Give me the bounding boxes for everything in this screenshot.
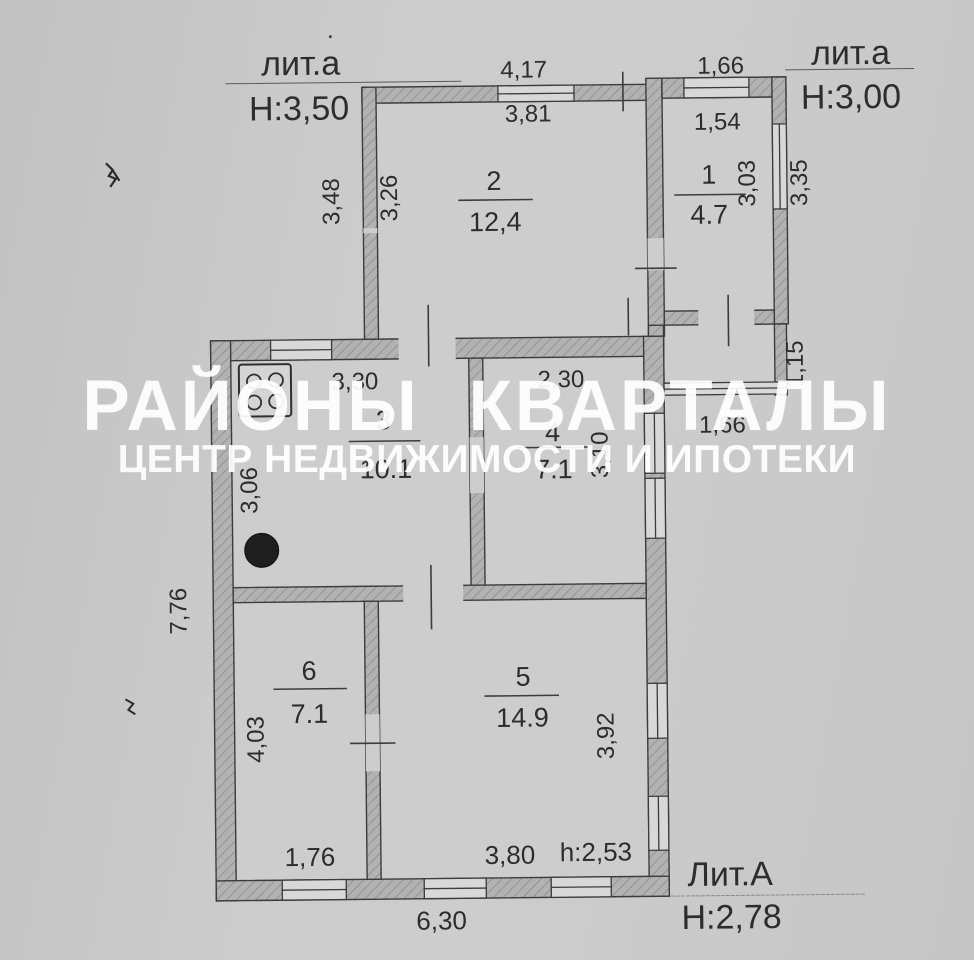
dim-porch-width: 1,66 — [699, 411, 746, 438]
room2-area: 12,4 — [469, 207, 522, 238]
annex-top-right-height: Н:3,00 — [801, 78, 902, 117]
plan-drawing: лит.а Н:3,50 лит.а Н:3,00 Лит.А Н:2,78 4… — [105, 29, 922, 943]
dim-left-total-height: 7,76 — [165, 588, 192, 635]
fraction-line-room3 — [350, 441, 420, 442]
dim-top-right-width: 1,66 — [697, 52, 744, 79]
dim-top-left-width: 4,17 — [500, 56, 547, 83]
furnace-icon — [245, 533, 279, 567]
annex-top-left-height: Н:3,50 — [249, 89, 350, 128]
door-swing-kitchen — [428, 306, 429, 366]
dim-porch-height: 1,15 — [782, 340, 809, 387]
room3-area: 10.1 — [359, 454, 412, 485]
ceiling-height-note: h:2,53 — [560, 837, 633, 868]
main-building-label: Лит.А — [687, 855, 773, 894]
fraction-line-room5 — [485, 695, 558, 696]
window-room2-top — [498, 85, 574, 102]
room2-number: 2 — [486, 166, 501, 196]
dim-room3-width: 3,30 — [331, 368, 378, 395]
dim-room1-inner-width: 1,54 — [694, 108, 741, 135]
ink-mark-1 — [107, 164, 119, 186]
dim-room5-height: 3,92 — [592, 712, 619, 759]
dim-room3-height: 3,06 — [236, 467, 263, 514]
dim-room6-height: 4,03 — [242, 716, 269, 763]
floor-plan: лит.а Н:3,50 лит.а Н:3,00 Лит.А Н:2,78 4… — [0, 0, 974, 960]
dim-room2-inner-width: 3,81 — [505, 100, 552, 127]
door-swing-room1 — [728, 295, 729, 345]
window-main-top-left — [271, 340, 332, 361]
window-main-bottom-2 — [424, 878, 486, 899]
joint-room2-left-wall — [363, 228, 377, 233]
dim-room1-outer-height: 3,35 — [786, 159, 813, 206]
room3-number: 3 — [376, 405, 391, 435]
window-porch-bottom — [664, 382, 787, 395]
window-main-bottom-1 — [282, 880, 346, 901]
ink-dot — [329, 35, 332, 38]
window-room1-top — [684, 77, 749, 98]
dim-room2-inner-height: 3,26 — [376, 175, 403, 222]
dim-room2-outer-height: 3,48 — [318, 178, 345, 225]
door-room1-porch — [698, 308, 754, 327]
dim-bottom-total-width: 6,30 — [416, 905, 467, 936]
room6-number: 6 — [301, 656, 316, 686]
gas-stove-icon — [239, 364, 292, 417]
dim-room5-width: 3,80 — [484, 840, 535, 871]
door-room3-room5 — [403, 583, 463, 603]
window-main-right-3 — [647, 683, 668, 738]
window-main-bottom-3 — [551, 877, 611, 898]
room5-number: 5 — [515, 662, 530, 692]
porch-interior — [656, 324, 775, 385]
annex-top-right-label: лит.а — [811, 34, 890, 73]
wall-room2-room1 — [646, 78, 665, 336]
door-swing-room5 — [431, 566, 432, 629]
dim-room1-inner-height: 3,03 — [734, 160, 761, 207]
dim-room6-width: 1,76 — [284, 842, 335, 873]
window-main-right-1 — [644, 413, 665, 473]
dim-room4-height: 3,10 — [586, 431, 613, 478]
room4-number: 4 — [545, 417, 560, 447]
door-room3-room4 — [470, 437, 485, 493]
underline-lit-A-main — [671, 894, 864, 896]
main-building-height: Н:2,78 — [681, 898, 782, 937]
dim-room4-width: 2,30 — [537, 366, 584, 393]
fraction-line-room6 — [274, 689, 346, 690]
door-room2-kitchen — [398, 336, 455, 361]
room1-number: 1 — [701, 160, 716, 190]
window-main-right-2 — [645, 478, 666, 538]
scanned-floorplan-page: лит.а Н:3,50 лит.а Н:3,00 Лит.А Н:2,78 4… — [0, 0, 974, 960]
ink-mark-2 — [126, 700, 134, 714]
fraction-line-room2 — [459, 200, 532, 201]
room5-area: 14.9 — [496, 702, 549, 733]
room6-area: 7.1 — [291, 699, 329, 729]
window-main-right-4 — [648, 796, 669, 850]
annex-top-left-label: лит.а — [261, 45, 340, 84]
room1-area: 4.7 — [690, 199, 728, 229]
room4-area: 7.1 — [535, 454, 573, 484]
door-room2-room1 — [647, 238, 663, 270]
